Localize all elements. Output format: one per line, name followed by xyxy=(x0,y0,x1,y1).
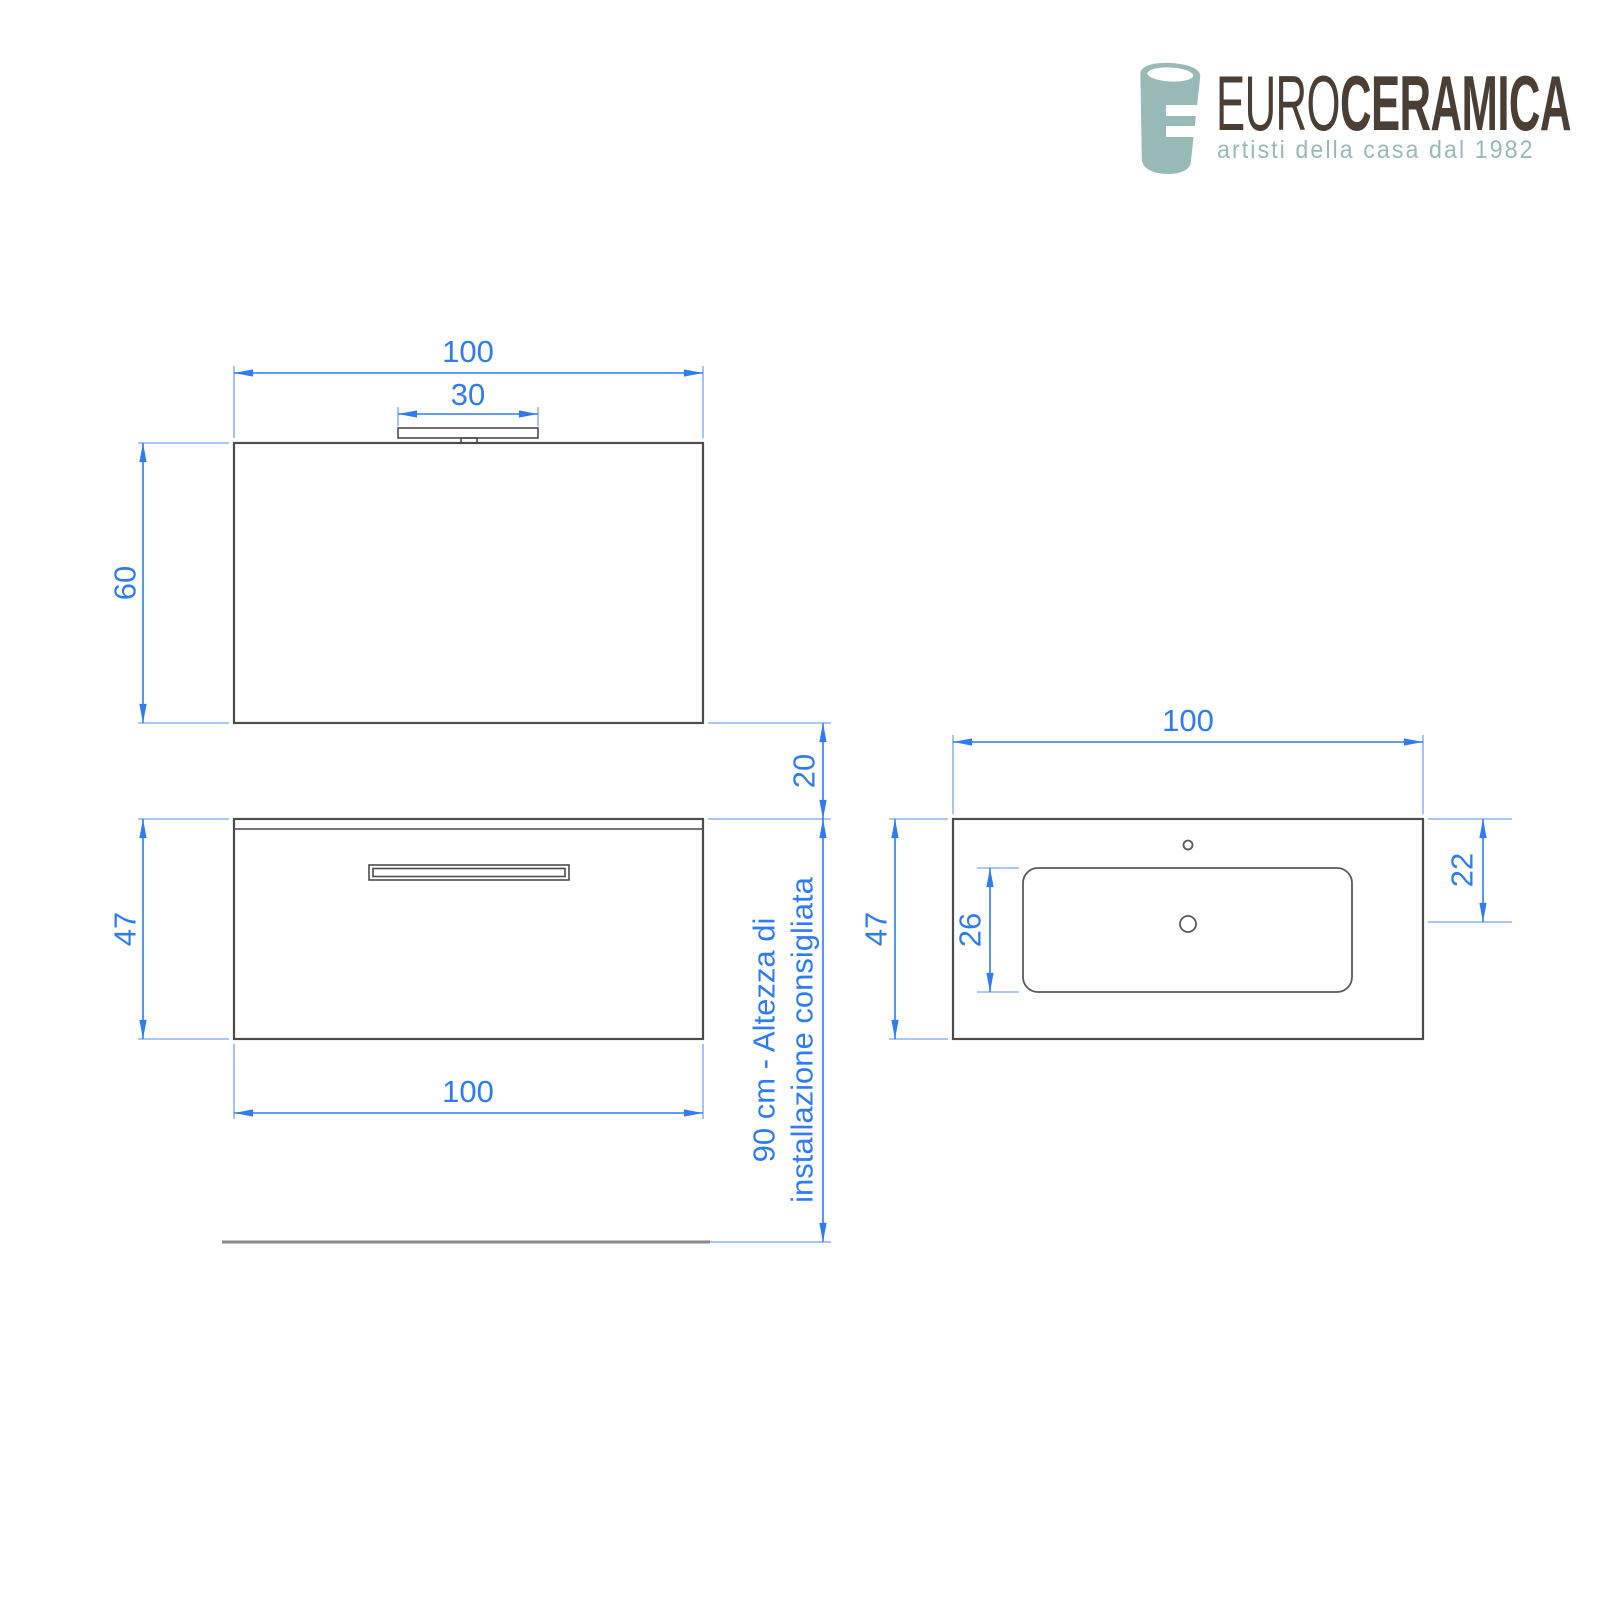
basin-depth-label: 47 xyxy=(859,912,894,946)
logo-cup-icon xyxy=(1130,62,1208,176)
install-height-note-line1: 90 cm - Altezza di xyxy=(747,918,782,1163)
technical-drawing-page: 100 30 60 20 47 100 90 cm - Altezza di i… xyxy=(0,0,1600,1600)
install-height-note-line2: installazione consigliata xyxy=(785,876,820,1202)
cabinet-width-label: 100 xyxy=(442,1074,494,1109)
drain-offset-label: 22 xyxy=(1445,853,1480,887)
dimension-drawing: 100 30 60 20 47 100 90 cm - Altezza di i… xyxy=(0,0,1600,1600)
mirror-height-label: 60 xyxy=(108,566,143,600)
logo-brand-suffix: CERAMICA xyxy=(1340,59,1571,147)
cabinet-outline xyxy=(234,819,703,1039)
logo-tagline: artisti della casa dal 1982 xyxy=(1217,136,1535,165)
dimension-labels: 100 30 60 20 47 100 90 cm - Altezza di i… xyxy=(108,334,1480,1203)
extension-lines xyxy=(138,366,1512,1242)
drawer-handle-outer xyxy=(369,865,569,880)
mirror-cabinet-gap-label: 20 xyxy=(787,754,822,788)
mirror-light-stem xyxy=(461,438,477,443)
mirror-width-label: 100 xyxy=(442,334,494,369)
cup-e-gap-lower xyxy=(1166,126,1208,137)
light-width-label: 30 xyxy=(451,377,485,412)
basin-width-label: 100 xyxy=(1162,703,1214,738)
basin-bowl-outline xyxy=(1023,868,1352,992)
drain-hole xyxy=(1180,916,1196,932)
faucet-hole xyxy=(1184,841,1193,850)
cup-e-gap-upper xyxy=(1166,105,1208,116)
cabinet-height-label: 47 xyxy=(108,912,143,946)
mirror-light-fixture xyxy=(398,428,538,438)
logo-brand-name: EUROCERAMICA xyxy=(1216,64,1571,142)
logo-brand-prefix: EURO xyxy=(1216,59,1340,147)
bowl-depth-label: 26 xyxy=(953,913,988,947)
drawer-handle-inner xyxy=(373,869,565,877)
mirror-outline xyxy=(234,443,703,723)
